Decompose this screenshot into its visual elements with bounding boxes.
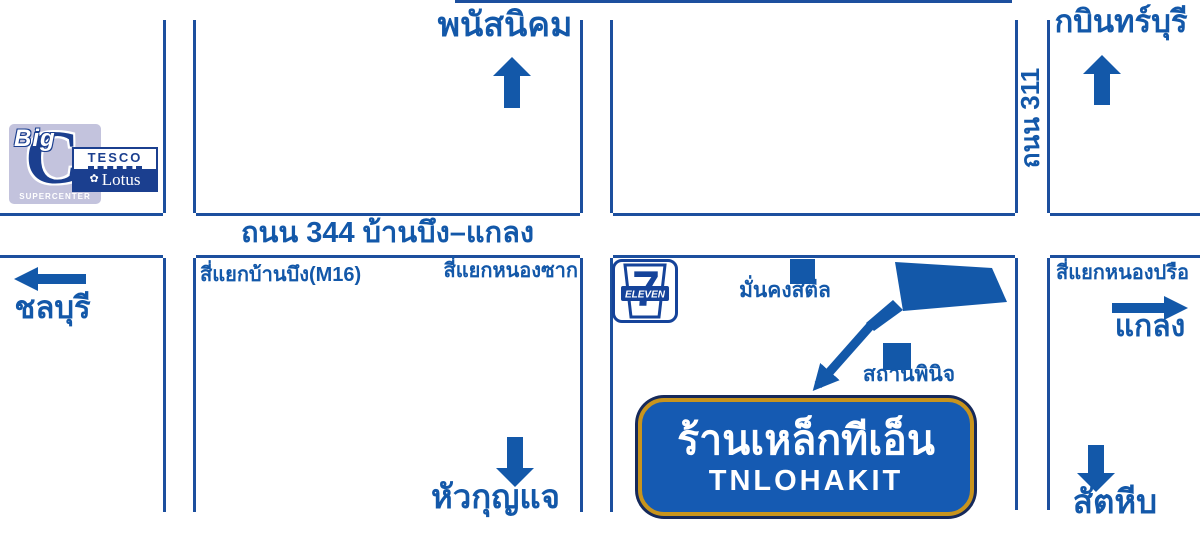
seven-eleven-icon: 7 ELEVEN [615, 262, 675, 320]
lotus-word: Lotus [102, 171, 141, 188]
label-mankong-steel: มั่นคงสตีล [722, 279, 848, 303]
road-344-top-line [196, 213, 580, 216]
road-311-line [1047, 258, 1050, 510]
road-344-top-line [1050, 213, 1200, 216]
eleven-word: ELEVEN [625, 290, 666, 301]
label-road-311: ถนน 311 [1016, 43, 1046, 193]
arrow-up-kabinburi [1083, 55, 1121, 105]
road-311-line [1047, 20, 1050, 213]
road-vertical-1 [193, 20, 196, 213]
destination-english-name: TNLOHAKIT [709, 466, 904, 498]
shop-site-polygon [895, 262, 1007, 311]
tesco-word: TESCO [88, 150, 143, 169]
road-344-bottom-line [0, 255, 163, 258]
label-intersection-banbueng: สี่แยกบ้านบึง(M16) [200, 264, 385, 287]
road-344-bottom-line [196, 255, 580, 258]
seven-eleven-logo: 7 ELEVEN [612, 259, 678, 323]
shop-site-polygon-tail [866, 300, 903, 331]
road-vertical-1 [163, 20, 166, 213]
road-311-line [1015, 258, 1018, 510]
road-344-bottom-line [1050, 255, 1200, 258]
label-sathanpinit: สถานพินิจ [850, 363, 968, 387]
label-sattahip: สัตหีบ [1045, 483, 1185, 521]
arrow-left-chonburi [14, 267, 86, 291]
label-road-344: ถนน 344 บ้านบึง–แกลง [195, 217, 580, 250]
destination-box: ร้านเหล็กทีเอ็น TNLOHAKIT [638, 398, 974, 516]
road-344-top-line [613, 213, 1015, 216]
big-c-word: Big [14, 125, 56, 153]
label-intersection-nongsak: สี่แยกหนองซาก [420, 260, 578, 283]
tesco-lotus-logo: TESCO ✿ Lotus [72, 147, 158, 192]
arrow-up-phanatnikhom [493, 57, 531, 108]
label-phanatnikhom: พนัสนิคม [420, 6, 590, 45]
road-vertical-2 [580, 20, 583, 213]
road-vertical-2 [580, 258, 583, 512]
label-chonburi: ชลบุรี [5, 290, 100, 326]
road-344-bottom-line [613, 255, 1015, 258]
road-vertical-1 [163, 258, 166, 512]
road-vertical-1 [193, 258, 196, 512]
label-kabinburi: กบินทร์บุรี [1042, 4, 1200, 40]
road-top-edge [455, 0, 1012, 3]
label-klaeng: แกลง [1105, 310, 1195, 345]
lotus-flower-icon: ✿ [90, 174, 99, 185]
road-vertical-2 [610, 20, 613, 213]
destination-thai-name: ร้านเหล็กทีเอ็น [677, 416, 935, 465]
direction-map: พนัสนิคม กบินทร์บุรี ถนน 311 ถนน 344 บ้า… [0, 0, 1200, 537]
label-intersection-nongprue: สี่แยกหนองปรือ [1050, 262, 1195, 285]
label-huakunjae: หัวกุญแจ [408, 478, 583, 516]
road-344-top-line [0, 213, 163, 216]
